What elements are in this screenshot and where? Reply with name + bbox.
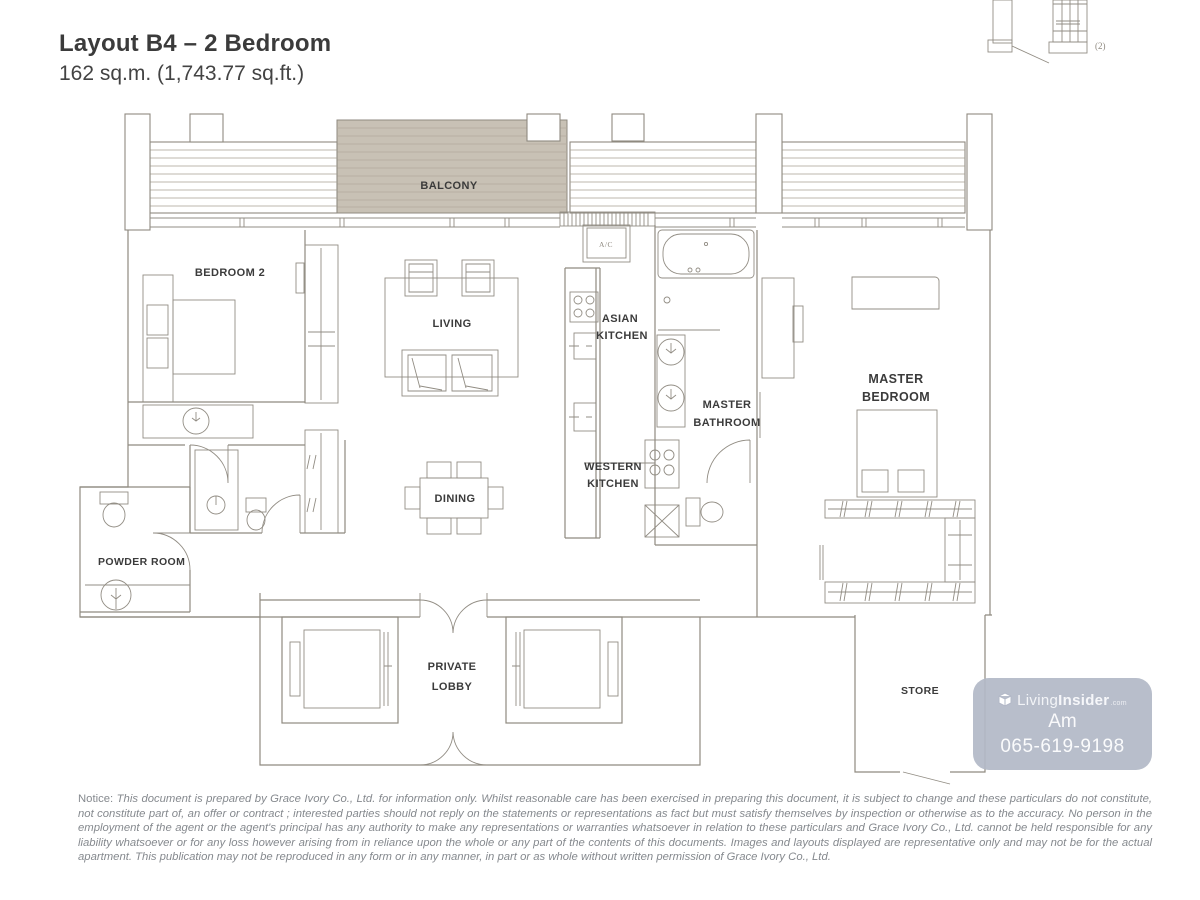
tv-partition (762, 278, 794, 378)
door-arc (420, 732, 487, 765)
exterior-walls (80, 230, 992, 784)
master-bedroom: MASTER BEDROOM (757, 277, 975, 603)
door-leaf (757, 392, 760, 438)
brand-living: Living (1017, 692, 1058, 709)
elevator-left (282, 617, 398, 723)
shower-drain (664, 297, 670, 303)
door-arc (707, 440, 750, 483)
toilet-tank (686, 498, 700, 526)
vanity-counter (143, 405, 253, 438)
bed (173, 300, 235, 374)
powder-room: POWDER ROOM (80, 487, 190, 612)
toilet-tank (100, 492, 128, 504)
cube-icon (998, 692, 1012, 711)
watermark-badge: LivingInsider.com Am 065-619-9198 (973, 678, 1152, 770)
chair (427, 462, 451, 478)
chair (457, 462, 481, 478)
floorplan-page: Layout B4 – 2 Bedroom 162 sq.m. (1,743.7… (0, 0, 1200, 900)
room-label-asian-kitchen-1: ASIAN (602, 313, 638, 325)
column (612, 114, 644, 141)
door-arc (420, 600, 487, 633)
column (967, 114, 992, 230)
bathroom2 (128, 430, 345, 533)
living-room: LIVING (385, 260, 518, 396)
stove (570, 292, 598, 322)
pillow (147, 338, 168, 368)
bedroom2: BEDROOM 2 (128, 230, 338, 438)
room-label-store: STORE (901, 685, 939, 697)
room-label-bedroom2: BEDROOM 2 (195, 267, 265, 279)
room-label-western-kitchen-2: KITCHEN (587, 478, 639, 490)
room-label-powder-room: POWDER ROOM (98, 556, 185, 568)
dining-area: DINING (405, 462, 503, 534)
brand-insider: Insider (1058, 692, 1109, 709)
private-lobby: PRIVATE LOBBY (260, 593, 700, 765)
bathtub (658, 230, 754, 278)
brand-tld: .com (1110, 700, 1126, 707)
window-band (150, 212, 965, 227)
column (756, 114, 782, 213)
column (190, 114, 223, 142)
watermark-agent: Am (1048, 710, 1077, 734)
tv-icon (793, 306, 803, 342)
chair (405, 487, 420, 509)
master-bathroom: MASTER BATHROOM (655, 225, 761, 617)
pillow (147, 305, 168, 335)
toilet-bowl (701, 502, 723, 522)
toilet-bowl (103, 503, 125, 527)
tv-icon (296, 263, 304, 293)
notice-text: Notice: This document is prepared by Gra… (78, 792, 1152, 865)
bed (857, 410, 937, 497)
door-arc (190, 445, 228, 483)
chair (457, 518, 481, 534)
door-arc (262, 495, 300, 533)
keyplan-note: (2) (1095, 41, 1106, 51)
room-label-private-lobby-2: LOBBY (432, 681, 473, 693)
notice-prefix: Notice: (78, 793, 113, 805)
pillow (862, 470, 888, 492)
walk-in-closet (820, 500, 975, 603)
column (125, 114, 150, 230)
keyplan-fragment: (2) (988, 0, 1106, 63)
shower (195, 450, 238, 530)
room-label-master-bedroom-1: MASTER (868, 372, 923, 386)
room-label-western-kitchen-1: WESTERN (584, 461, 642, 473)
headboard-unit (143, 275, 173, 402)
room-label-asian-kitchen-2: KITCHEN (596, 330, 648, 342)
column (527, 114, 560, 141)
room-label-private-lobby-1: PRIVATE (428, 661, 477, 673)
kitchen-galley: A/C ASIAN KITCHEN WESTERN KITCHEN (565, 225, 679, 538)
notice-body: This document is prepared by Grace Ivory… (78, 793, 1152, 863)
room-label-living: LIVING (432, 318, 471, 330)
balcony-area: BALCONY (125, 114, 992, 230)
chair (427, 518, 451, 534)
room-label-dining: DINING (435, 493, 476, 505)
elevator-right (506, 617, 622, 723)
ac-label: A/C (599, 240, 613, 249)
wardrobe (305, 245, 338, 403)
room-label-master-bedroom-2: BEDROOM (862, 390, 930, 404)
room-label-balcony: BALCONY (420, 180, 477, 192)
watermark-phone: 065-619-9198 (1000, 735, 1124, 759)
oven-unit (645, 440, 679, 488)
room-label-master-bathroom-1: MASTER (703, 399, 752, 411)
chair (488, 487, 503, 509)
hall-closet (305, 430, 338, 533)
bench (852, 277, 939, 309)
room-label-master-bathroom-2: BATHROOM (693, 417, 760, 429)
store-room: STORE (901, 685, 939, 697)
pillow (898, 470, 924, 492)
watermark-brand: LivingInsider.com (998, 690, 1127, 709)
